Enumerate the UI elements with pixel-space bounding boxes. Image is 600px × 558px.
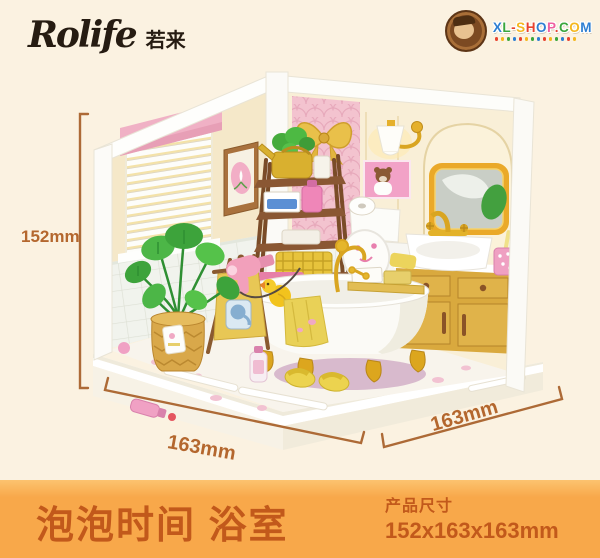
height-dimension-label: 152mm [21,227,80,247]
product-size-value: 152x163x163mm [385,518,559,544]
small-red-item [168,413,176,421]
brand-logo-text: Rolife [28,14,136,56]
tulip-picture [224,142,258,216]
left-post [94,144,112,360]
retailer-badge: XL-SHOP.COM [445,10,592,52]
badge-text: XL-SHOP.COM [493,21,592,35]
product-size-block: 产品尺寸 152x163x163mm [385,492,559,544]
height-dimension-line [80,114,88,388]
folded-cloth [282,230,320,244]
basket-tag [162,325,186,355]
tissue-box [264,192,300,212]
woven-basket [151,312,205,371]
scene-illustration [0,0,600,558]
product-banner: 泡泡时间 浴室 产品尺寸 152x163x163mm [0,480,600,558]
brand-logo-chinese: 若来 [146,24,186,53]
bear-picture [364,161,410,198]
product-promo-image: { "brand": { "logo": "Rolife", "logo_cn"… [0,0,600,558]
retailer-mascot-icon [445,10,487,52]
mirror [432,166,511,232]
pink-ball [118,342,130,354]
jar [314,156,330,178]
bath-towel [284,296,328,347]
product-size-label: 产品尺寸 [385,492,559,516]
towel-sticker [226,300,251,329]
badge-dots [493,37,592,41]
product-name: 泡泡时间 浴室 [36,494,289,549]
brand-logo: Rolife 若来 [28,14,186,56]
